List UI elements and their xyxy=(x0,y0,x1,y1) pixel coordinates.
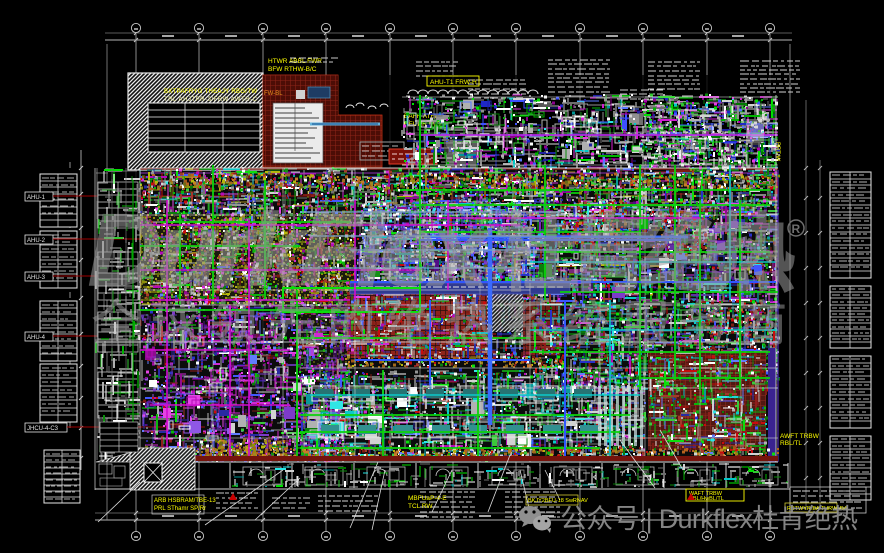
svg-text:AHU-1: AHU-1 xyxy=(27,195,46,201)
svg-text:AHU-3: AHU-3 xyxy=(27,275,46,281)
svg-text:DurkFlex: DurkFlex xyxy=(88,193,492,307)
svg-text:TRL AHJTPR-3/FRW AWTH-C: TRL AHJTPR-3/FRW AWTH-C xyxy=(164,97,258,103)
svg-text:JHCU-4-C3: JHCU-4-C3 xyxy=(27,426,59,432)
svg-text:AHU-2: AHU-2 xyxy=(27,238,46,244)
svg-text:FW-BL: FW-BL xyxy=(264,91,283,97)
svg-text:AHU-4: AHU-4 xyxy=(27,335,46,341)
svg-text:AHU-T1 FRW-H: AHU-T1 FRW-H xyxy=(430,79,477,86)
svg-text:公众号 | Durkflex杜肯绝热: 公众号 | Durkflex杜肯绝热 xyxy=(560,504,858,534)
svg-text:PRL SThamr SP/Rr: PRL SThamr SP/Rr xyxy=(154,506,206,512)
svg-text:MBFUaP-4-E: MBFUaP-4-E xyxy=(408,495,447,502)
svg-text:杜肯绝热: 杜肯绝热 xyxy=(495,207,795,301)
svg-text:TCL RW: TCL RW xyxy=(408,503,433,510)
svg-text:RBL/TL: RBL/TL xyxy=(780,440,802,447)
svg-text:ARB HSBRAM/TBE-13: ARB HSBRAM/TBE-13 xyxy=(154,498,216,504)
svg-text:BRT-W: BRT-W xyxy=(774,142,780,162)
svg-text:BFW RTHW-B/C: BFW RTHW-B/C xyxy=(268,66,317,73)
svg-text:BXTPAFRYG THEAJY RBG/TW: BXTPAFRYG THEAJY RBG/TW xyxy=(164,89,257,95)
svg-text:AWFT TRBW: AWFT TRBW xyxy=(780,433,820,440)
